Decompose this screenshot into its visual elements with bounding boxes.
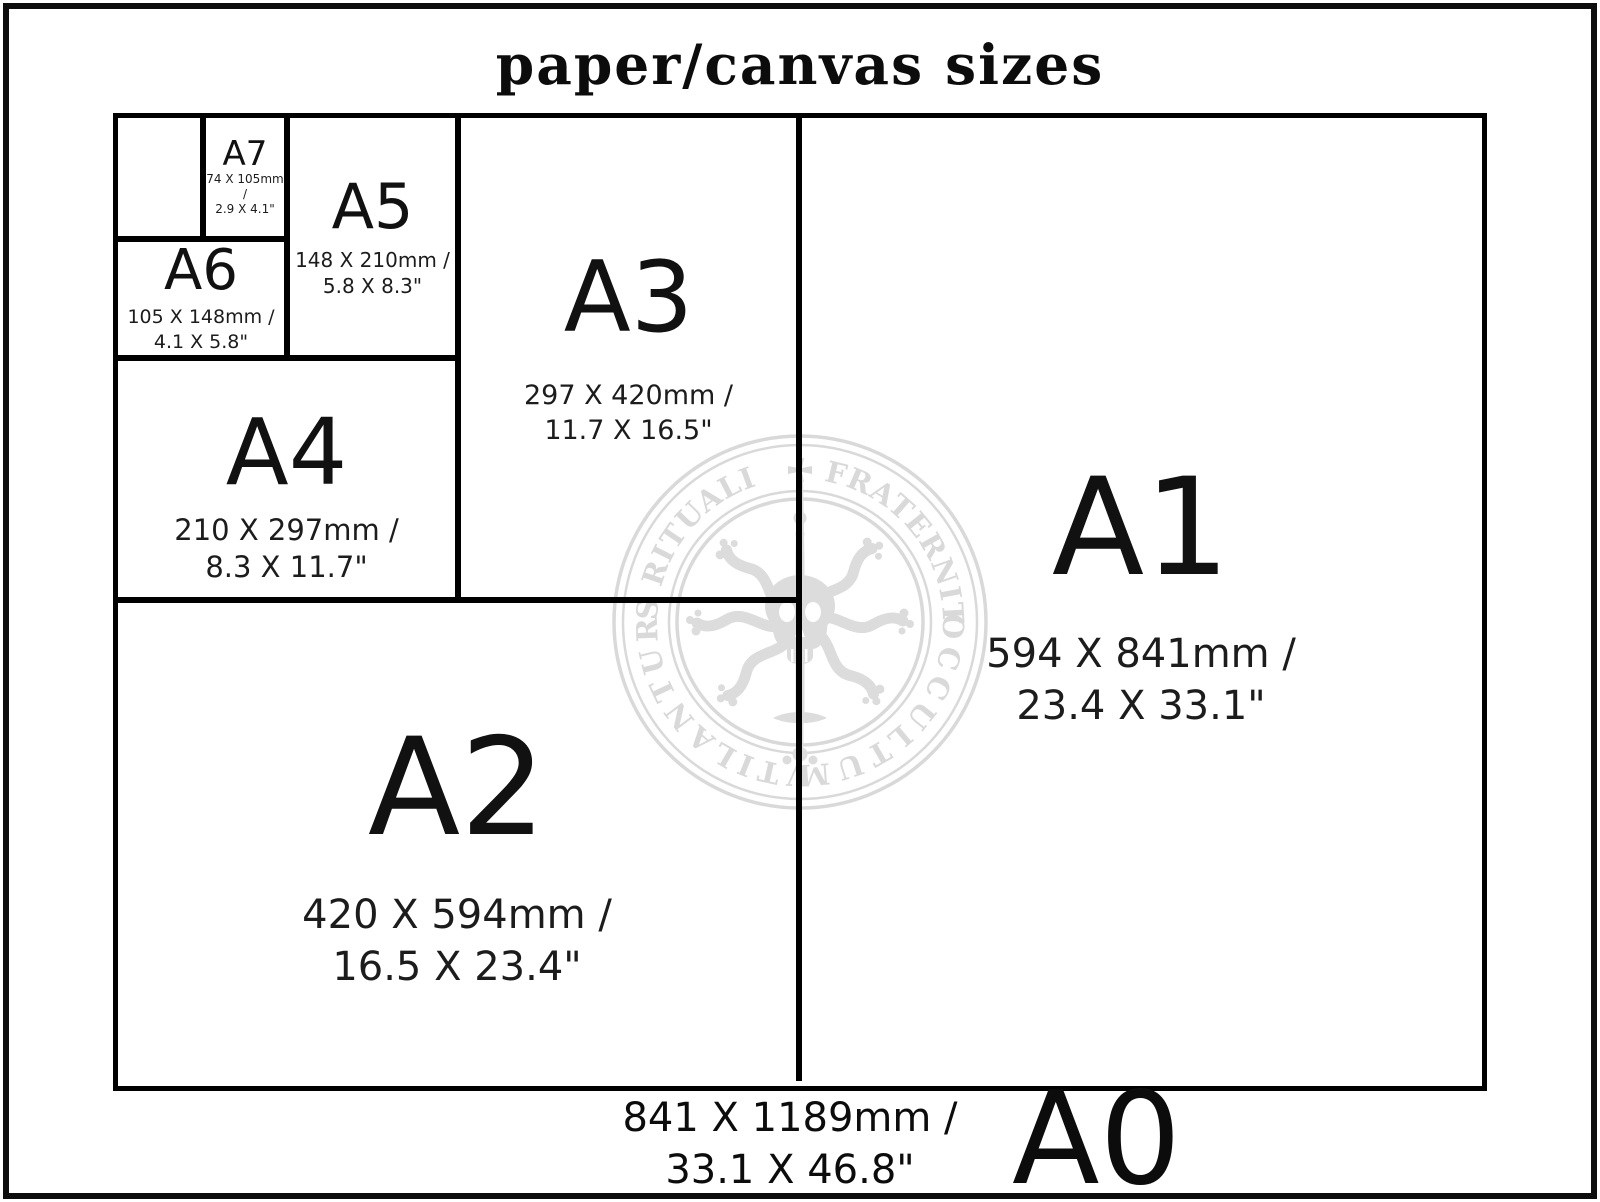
cell-a5: A5 148 X 210mm / 5.8 X 8.3": [290, 118, 455, 355]
size-dims-a7-mm: 74 X 105mm /: [206, 172, 284, 202]
size-dims-a5-mm: 148 X 210mm /: [295, 247, 450, 273]
cell-a7: A7 74 X 105mm / 2.9 X 4.1": [206, 118, 284, 236]
size-dims-a2-mm: 420 X 594mm /: [302, 889, 612, 941]
size-label-a7: A7: [223, 137, 268, 173]
size-dims-a5: 148 X 210mm / 5.8 X 8.3": [295, 247, 450, 299]
size-dims-a0-inches: 33.1 X 46.8": [555, 1144, 1025, 1196]
size-dims-a4-mm: 210 X 297mm /: [174, 512, 399, 550]
size-label-a6: A6: [164, 242, 238, 301]
size-dims-a1: 594 X 841mm / 23.4 X 33.1": [986, 628, 1296, 732]
size-dims-a0: 841 X 1189mm / 33.1 X 46.8": [555, 1092, 1025, 1196]
size-dims-a6-mm: 105 X 148mm /: [127, 305, 274, 330]
size-dims-a3: 297 X 420mm / 11.7 X 16.5": [524, 378, 733, 448]
cell-a1: A1 594 X 841mm / 23.4 X 33.1": [802, 118, 1480, 1081]
size-dims-a4-inches: 8.3 X 11.7": [174, 549, 399, 587]
size-dims-a2-inches: 16.5 X 23.4": [302, 941, 612, 993]
size-dims-a3-inches: 11.7 X 16.5": [524, 413, 733, 448]
size-label-a1: A1: [1052, 457, 1230, 599]
size-label-a5: A5: [332, 174, 414, 239]
size-dims-a4: 210 X 297mm / 8.3 X 11.7": [174, 512, 399, 587]
size-dims-a5-inches: 5.8 X 8.3": [295, 273, 450, 299]
size-label-a2: A2: [368, 717, 546, 859]
size-dims-a3-mm: 297 X 420mm /: [524, 378, 733, 413]
cell-a6: A6 105 X 148mm / 4.1 X 5.8": [118, 242, 284, 355]
paper-sizes-chart: paper/canvas sizes ARS RITUALI FRATERNIT…: [0, 0, 1600, 1202]
size-dims-a7-inches: 2.9 X 4.1": [206, 202, 284, 217]
size-dims-a0-mm: 841 X 1189mm /: [555, 1092, 1025, 1144]
cell-a2: A2 420 X 594mm / 16.5 X 23.4": [118, 603, 796, 1081]
size-label-a3: A3: [564, 247, 693, 350]
size-label-a4: A4: [226, 405, 347, 502]
size-dims-a7: 74 X 105mm / 2.9 X 4.1": [206, 172, 284, 217]
page-title: paper/canvas sizes: [0, 32, 1600, 97]
size-dims-a1-inches: 23.4 X 33.1": [986, 680, 1296, 732]
size-dims-a2: 420 X 594mm / 16.5 X 23.4": [302, 889, 612, 993]
size-diagram: A7 74 X 105mm / 2.9 X 4.1" A6 105 X 148m…: [113, 113, 1487, 1091]
size-dims-a1-mm: 594 X 841mm /: [986, 628, 1296, 680]
size-label-a0: A0: [1012, 1076, 1181, 1202]
size-dims-a6-inches: 4.1 X 5.8": [127, 330, 274, 355]
cell-a3: A3 297 X 420mm / 11.7 X 16.5": [461, 118, 796, 597]
cell-a4: A4 210 X 297mm / 8.3 X 11.7": [118, 361, 455, 597]
size-dims-a6: 105 X 148mm / 4.1 X 5.8": [127, 305, 274, 354]
